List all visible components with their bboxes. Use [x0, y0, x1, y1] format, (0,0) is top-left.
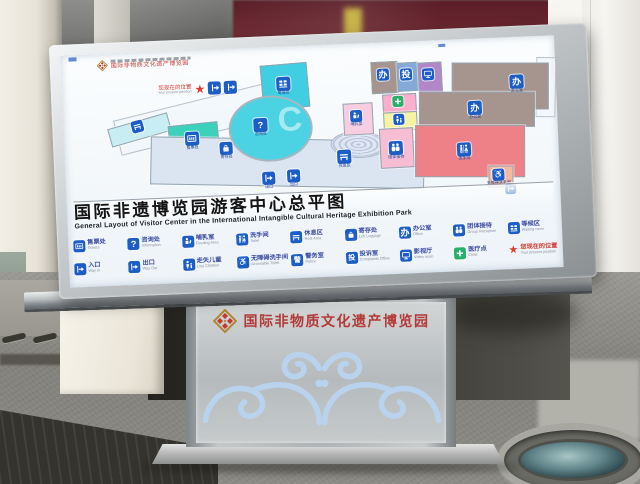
wheelchair-icon: ♿ — [237, 256, 249, 268]
scroll-ornament-icon — [196, 335, 448, 427]
legend-item-way-in: 入口Way In — [74, 260, 128, 285]
office-icon: 办 — [399, 226, 411, 238]
police-icon: 警 — [291, 254, 303, 266]
star-icon: ★ — [194, 82, 205, 94]
complaints-icon: 投 — [400, 68, 413, 81]
pedestal-header: 国际非物质文化遗产博览园 — [196, 302, 446, 333]
pedestal-plate: 国际非物质文化遗产博览园 — [196, 302, 446, 443]
door-arrow-icon — [128, 261, 140, 273]
legend-item-clinic: 医疗点Clinic — [454, 244, 508, 269]
map-board: C 售票处 等候区 ? 咨询处 — [49, 23, 597, 299]
door-arrow-icon — [74, 263, 86, 275]
legend-item-tickets: 售票处Tickets — [73, 237, 127, 262]
medical-cross-icon — [392, 96, 404, 108]
bench-icon — [290, 231, 302, 243]
ticket-window-icon: 售票处 — [185, 131, 200, 146]
legend-item-lost-children: 走失儿童Lost Children — [183, 256, 237, 281]
legend-item-group-reception: 团体接待Group Reception — [453, 221, 507, 246]
legend-item-your-position: ★ 您现在的位置Your present position — [508, 242, 562, 267]
legend-item-accessible-toilet: ♿ 无障碍洗手间Accessible Toilet — [237, 253, 291, 278]
child-icon — [393, 114, 405, 126]
legend-item-office: 办 办公室Office — [399, 224, 453, 249]
legend-item-way-out: 出口Way Out — [128, 258, 182, 283]
legend-item-rest-area: 休息区Rest Area — [290, 228, 344, 253]
toilet-icon — [236, 233, 248, 245]
toilet-icon: 洗手间 — [457, 142, 472, 157]
luggage-icon: 寄存处 — [219, 142, 233, 156]
child-icon — [183, 258, 195, 270]
group-icon: 团体接待 — [388, 141, 403, 156]
legend: 售票处Tickets ? 咨询处Information 哺乳室Feeding A… — [73, 219, 562, 285]
medical-cross-icon — [454, 247, 466, 259]
group-icon — [453, 224, 465, 236]
screen-icon — [400, 249, 412, 261]
legend-item-police: 警 警务室Police — [291, 251, 345, 276]
office-icon: 办 — [377, 68, 390, 81]
feeding-icon: 哺乳室 — [350, 110, 363, 123]
luggage-icon — [345, 229, 357, 241]
park-logo-icon — [97, 60, 108, 71]
office-icon: 办 办公室 — [468, 101, 483, 116]
screen-icon — [422, 68, 435, 81]
door-arrow-icon — [224, 81, 238, 95]
light-glass — [518, 439, 628, 481]
wheelchair-icon: ♿ 无障碍洗手间 — [492, 168, 505, 181]
legend-item-video-room: 影视厅Video room — [400, 247, 454, 272]
star-icon: ★ — [508, 245, 518, 256]
kiosk-pedestal: 国际非物质文化遗产博览园 — [186, 297, 456, 447]
question-icon: ? — [127, 238, 139, 250]
door-arrow-icon: 出口 — [262, 171, 276, 185]
pedestal-title: 国际非物质文化遗产博览园 — [244, 311, 430, 331]
feeding-icon — [182, 235, 194, 247]
kiosk-cast-shadow — [448, 292, 578, 334]
legend-item-information: ? 咨询处Information — [127, 235, 181, 260]
kiosk-base-plate — [152, 444, 504, 464]
legend-item-waiting-room: 等候区Waiting room — [507, 219, 561, 244]
map-panel: C 售票处 等候区 ? 咨询处 — [60, 35, 563, 287]
office-icon: 办 办公室 — [509, 74, 524, 89]
seats-icon — [507, 222, 519, 234]
swirl-decor: C — [277, 102, 303, 137]
question-icon: ? 咨询处 — [253, 118, 268, 133]
legend-item-feeding-area: 哺乳室Feeding Area — [182, 233, 236, 258]
photo-scene: 国际非物质文化遗产博览园 — [0, 0, 640, 484]
legend-item-toilet: 洗手间Toilet — [236, 230, 290, 255]
bench-icon: 休息区 — [337, 149, 352, 164]
park-logo-icon — [213, 309, 237, 333]
complaints-icon: 投 — [345, 252, 357, 264]
seats-icon: 等候区 — [276, 77, 291, 92]
legend-item-left-luggage: 寄存处Left Luggage — [344, 226, 398, 251]
legend-item-complaints-office: 投 投诉室Complaints Office — [345, 249, 399, 274]
door-arrow-icon: 出口 — [287, 169, 301, 183]
door-arrow-icon — [208, 81, 222, 95]
ticket-window-icon — [73, 240, 85, 252]
